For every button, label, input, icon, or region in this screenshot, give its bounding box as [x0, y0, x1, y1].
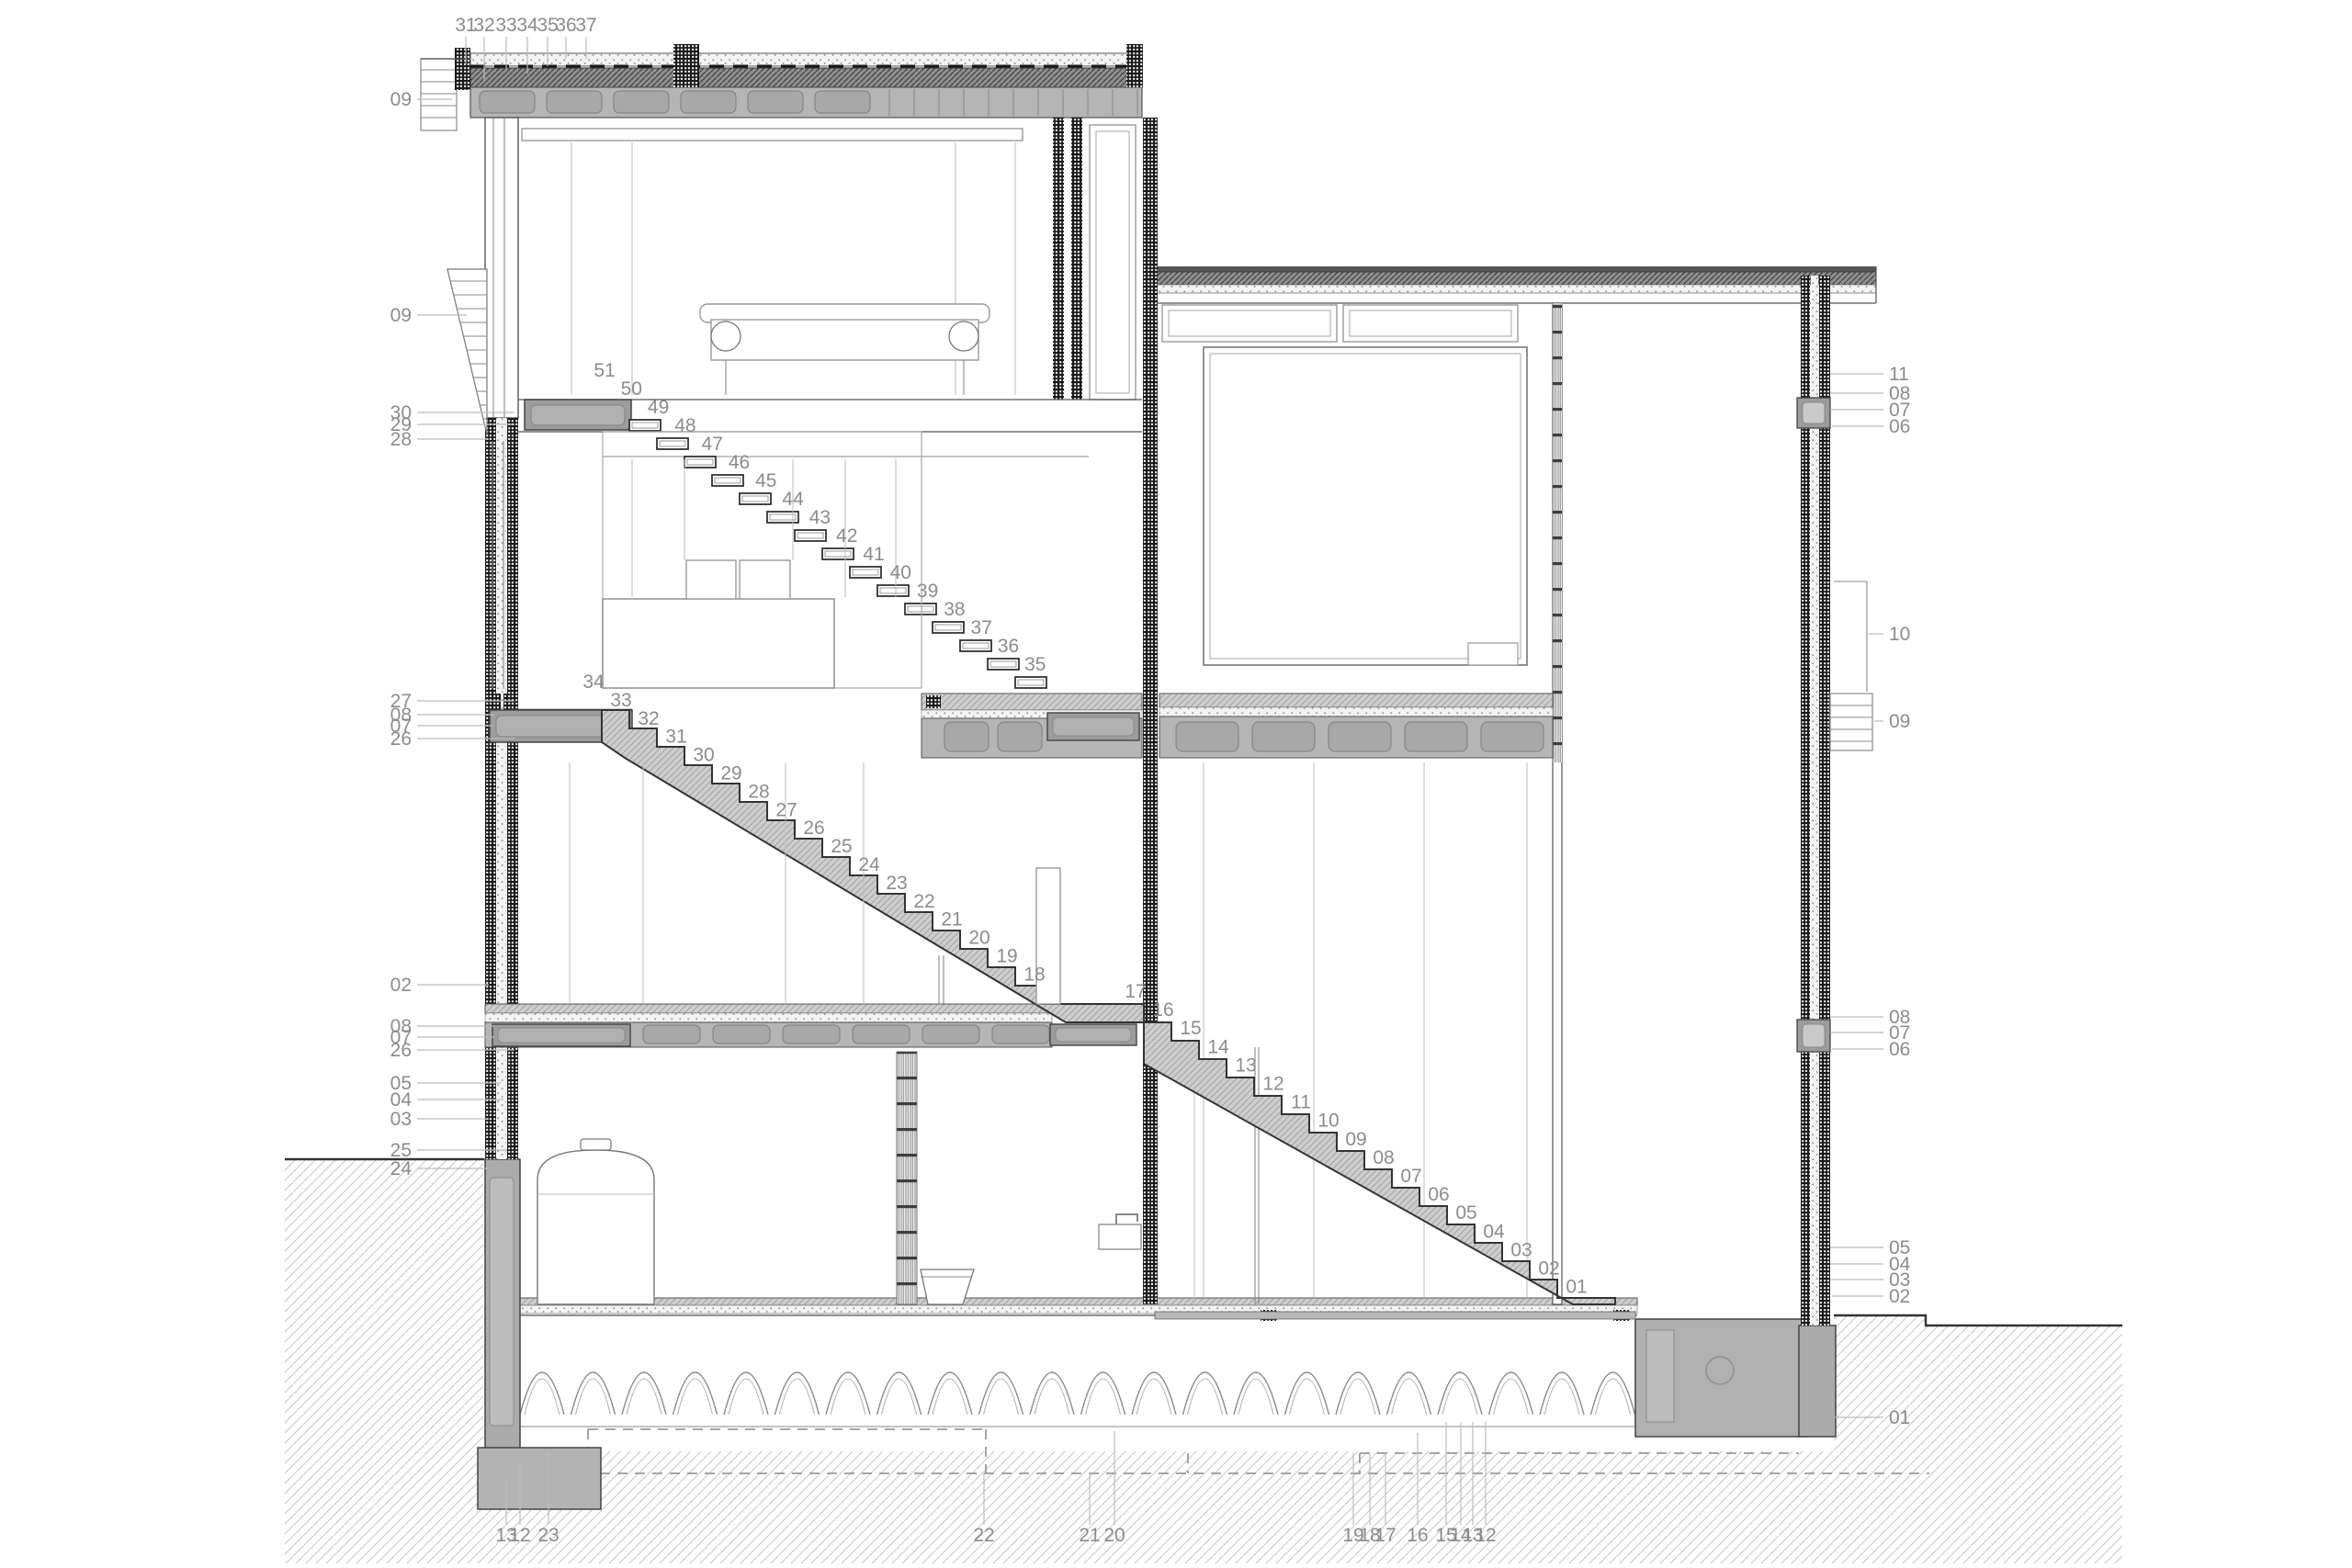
water-tank	[537, 1139, 654, 1304]
stair-tread	[988, 659, 1019, 670]
step-label-lower-01: 01	[1566, 1277, 1587, 1298]
stair-tread	[933, 622, 964, 633]
step-label-middle-30: 30	[693, 745, 714, 766]
callout-right-02: 02	[1889, 1286, 1910, 1307]
step-label-middle-21: 21	[941, 909, 962, 931]
callout-bottom-12: 12	[1475, 1525, 1496, 1546]
callout-left-26: 26	[390, 1040, 412, 1061]
step-label-upper-41: 41	[863, 544, 884, 565]
callout-left-04: 04	[390, 1089, 413, 1111]
step-label-upper-38: 38	[944, 599, 965, 620]
basement-wall-right	[1799, 1325, 1836, 1437]
callout-right-09: 09	[1889, 711, 1910, 732]
step-label-upper-51: 51	[594, 360, 615, 381]
cellar-partition-2	[1144, 1047, 1155, 1304]
parapet-block-left	[455, 48, 470, 90]
callout-left-09: 09	[390, 89, 412, 110]
step-label-lower-04: 04	[1483, 1221, 1505, 1242]
callout-left-28: 28	[390, 429, 412, 450]
vent-louver-right	[1830, 694, 1872, 750]
step-label-upper-50: 50	[621, 378, 642, 400]
right-roof	[1153, 266, 1876, 303]
step-label-upper-43: 43	[809, 507, 831, 528]
step-label-middle-28: 28	[748, 781, 769, 802]
step-label-upper-35: 35	[1024, 654, 1046, 675]
callout-left-09: 09	[390, 305, 412, 326]
callout-bottom-23: 23	[537, 1525, 559, 1546]
callout-right-11: 11	[1889, 364, 1909, 385]
step-label-middle-33: 33	[610, 690, 631, 711]
step-label-lower-13: 13	[1235, 1055, 1256, 1076]
stair-tread	[629, 420, 661, 431]
callout-left-03: 03	[390, 1109, 412, 1130]
step-label-middle-18: 18	[1023, 964, 1045, 985]
callout-right-10: 10	[1889, 624, 1910, 645]
stair-tread	[740, 493, 771, 504]
wardrobe-panel	[1204, 347, 1527, 665]
step-label-lower-02: 02	[1538, 1258, 1559, 1280]
step-label-lower-06: 06	[1428, 1184, 1449, 1205]
stair-tread	[877, 585, 909, 596]
exterior-wall-left-lower	[485, 418, 518, 1159]
step-label-lower-12: 12	[1262, 1074, 1283, 1095]
step-label-upper-36: 36	[998, 636, 1019, 657]
dimension-bracket-10	[1834, 581, 1867, 692]
step-label-upper-39: 39	[917, 581, 938, 602]
stair-tread	[850, 567, 881, 578]
main-roof	[421, 44, 1143, 130]
clerestory-window-living	[522, 129, 1023, 141]
folding-awning	[447, 269, 487, 434]
step-label-middle-24: 24	[858, 854, 880, 875]
step-label-upper-49: 49	[648, 397, 669, 418]
building-section-drawing: 3132333435363709093029282708072602080726…	[0, 0, 2352, 1568]
door-frame-l2-b	[740, 560, 790, 599]
step-label-middle-20: 20	[968, 928, 989, 949]
callout-left-24: 24	[390, 1158, 413, 1179]
callout-bottom-22: 22	[973, 1525, 994, 1546]
step-label-upper-42: 42	[836, 525, 857, 547]
step-label-middle-19: 19	[996, 946, 1017, 967]
callout-right-01: 01	[1889, 1407, 1910, 1428]
slab-top-floor	[518, 400, 1142, 457]
step-label-lower-10: 10	[1317, 1111, 1339, 1132]
step-label-upper-46: 46	[729, 452, 750, 473]
callout-right-06: 06	[1889, 416, 1910, 437]
callout-top-32: 32	[473, 15, 494, 36]
step-label-lower-08: 08	[1373, 1147, 1394, 1168]
exterior-wall-right	[1801, 276, 1830, 1325]
step-label-upper-37: 37	[971, 617, 992, 638]
step-label-middle-31: 31	[665, 727, 686, 748]
stair-tread	[905, 604, 936, 615]
exterior-wall-left-upper	[485, 118, 518, 418]
step-label-lower-17: 17	[1125, 981, 1146, 1002]
vaulted-foundation-slab	[520, 1372, 1635, 1415]
step-label-lower-05: 05	[1455, 1202, 1476, 1224]
step-label-middle-29: 29	[720, 763, 741, 784]
callout-right-06: 06	[1889, 1039, 1910, 1060]
roof-curb-block	[673, 44, 699, 87]
stair-tread	[1015, 677, 1046, 688]
step-label-middle-22: 22	[913, 891, 934, 912]
step-label-lower-07: 07	[1400, 1166, 1421, 1187]
step-label-middle-27: 27	[775, 799, 797, 820]
step-label-lower-03: 03	[1510, 1239, 1532, 1260]
door-frame-l2-a	[686, 560, 736, 599]
callout-left-26: 26	[390, 728, 412, 750]
callout-top-33: 33	[495, 15, 516, 36]
stair-tread	[822, 548, 854, 559]
stair-tread	[684, 457, 716, 468]
step-label-upper-48: 48	[674, 415, 695, 436]
step-label-middle-26: 26	[803, 818, 824, 839]
step-label-upper-45: 45	[755, 470, 776, 491]
callout-bottom-21: 21	[1079, 1525, 1100, 1546]
callout-bottom-17: 17	[1374, 1525, 1396, 1546]
step-label-middle-34: 34	[582, 671, 605, 693]
step-label-lower-09: 09	[1345, 1129, 1366, 1150]
stair-tread	[712, 475, 743, 486]
stair-tread	[767, 512, 798, 523]
cellar-partition-1	[897, 1052, 917, 1304]
step-label-upper-47: 47	[702, 434, 723, 455]
step-label-middle-32: 32	[638, 708, 659, 729]
callout-bottom-20: 20	[1103, 1525, 1125, 1546]
step-label-upper-40: 40	[890, 562, 911, 583]
step-label-upper-44: 44	[782, 489, 804, 510]
step-label-lower-16: 16	[1152, 999, 1173, 1021]
stair-tread	[795, 530, 826, 541]
stair-guard-wall	[603, 599, 834, 688]
step-label-lower-14: 14	[1207, 1036, 1229, 1057]
step-label-middle-25: 25	[831, 836, 852, 857]
callout-bottom-12: 12	[509, 1525, 530, 1546]
callout-top-36: 36	[555, 15, 576, 36]
stair-tread	[960, 640, 991, 651]
step-label-lower-11: 11	[1291, 1092, 1311, 1113]
sofa	[700, 304, 989, 395]
callout-left-02: 02	[390, 975, 412, 996]
step-label-lower-15: 15	[1180, 1018, 1201, 1039]
washbasin	[1099, 1214, 1141, 1249]
callout-top-34: 34	[516, 15, 538, 36]
callout-top-37: 37	[575, 15, 596, 36]
parapet-block-right	[1126, 44, 1143, 87]
step-label-middle-23: 23	[886, 873, 907, 894]
callout-bottom-16: 16	[1407, 1525, 1428, 1546]
footing-left	[478, 1448, 601, 1509]
stair-tread	[657, 438, 688, 449]
